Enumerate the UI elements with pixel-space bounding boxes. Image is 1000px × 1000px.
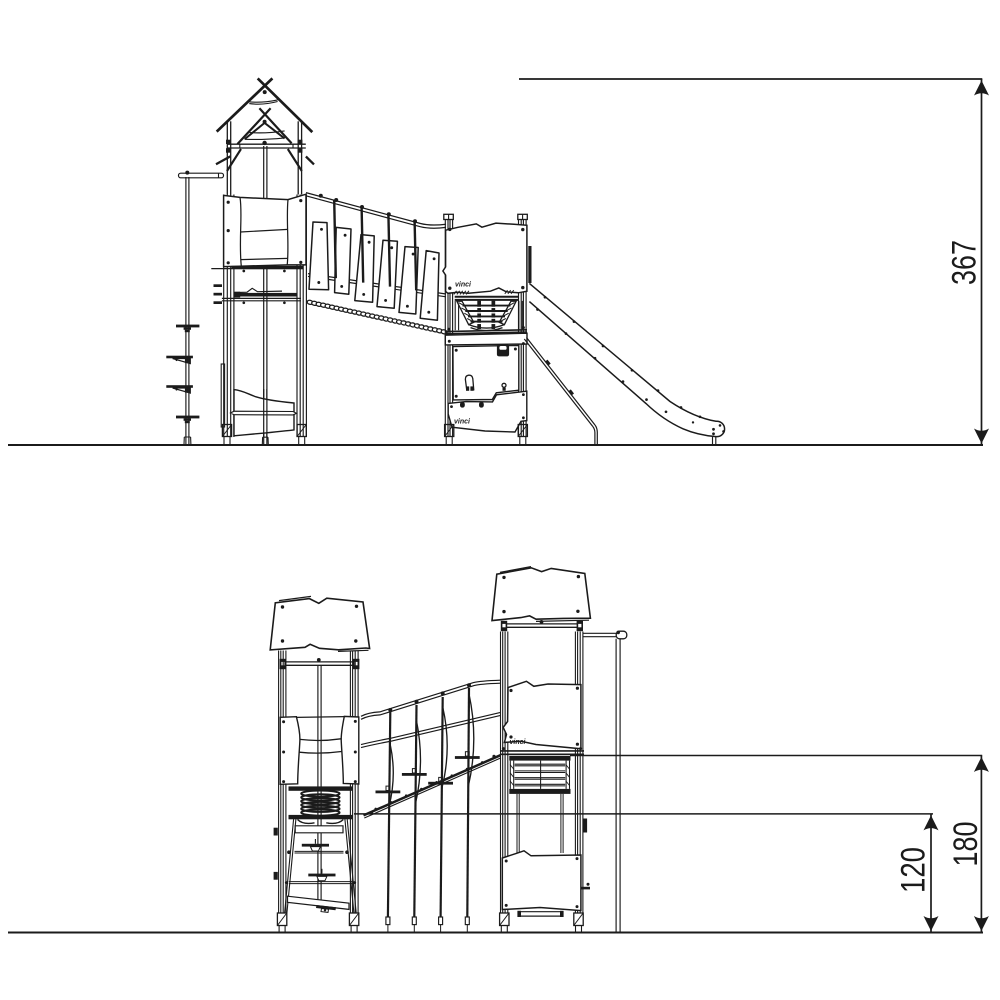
- svg-text:120: 120: [895, 847, 933, 893]
- svg-text:vinci: vinci: [455, 282, 472, 289]
- svg-text:367: 367: [946, 240, 984, 285]
- svg-text:vinci: vinci: [510, 739, 527, 746]
- svg-text:vinci: vinci: [454, 418, 471, 425]
- svg-text:180: 180: [947, 822, 985, 867]
